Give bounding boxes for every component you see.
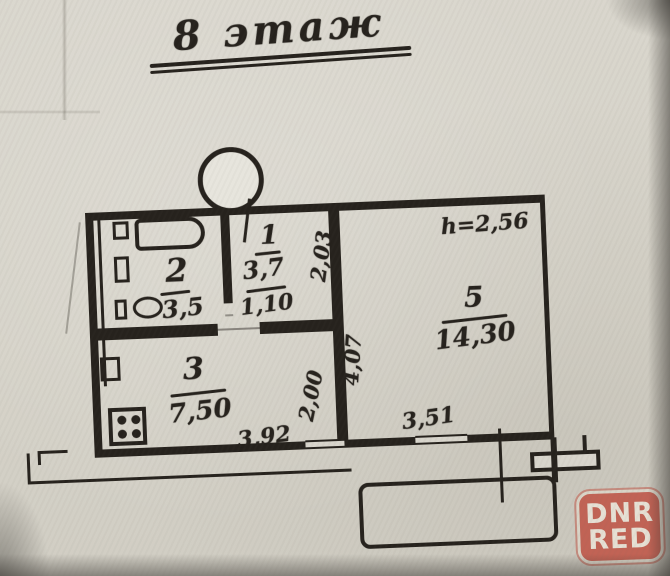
washbasin-icon <box>112 221 129 240</box>
balcony-rail-bracket-tick <box>38 451 42 465</box>
room-1-number: 1 <box>259 220 278 251</box>
photographed-floor-plan: 8 этаж <box>0 0 670 576</box>
kitchen-sink-icon <box>100 357 121 382</box>
kitchen-window <box>305 439 344 450</box>
wall-step-notch <box>582 435 587 451</box>
paper-crease-vertical <box>62 0 67 120</box>
paper-shadow-right-edge <box>648 0 670 576</box>
wall-right-extension <box>550 437 558 482</box>
pencil-stray-line <box>65 222 81 333</box>
sink-icon <box>114 256 130 283</box>
wall-step-bar <box>530 450 601 473</box>
floor-title: 8 этаж <box>146 0 411 74</box>
bathtub-icon <box>134 216 205 251</box>
vent-circle-icon <box>197 146 266 215</box>
floor-plan-drawing: 2 3,5 1 3,7 1,10 2,03 3 7,50 3,92 2,00 h… <box>85 195 554 458</box>
room-2-number: 2 <box>165 251 189 290</box>
paper-shadow-bottom-edge <box>0 554 670 576</box>
loggia-outline <box>358 475 558 549</box>
stove-burners-icon <box>117 416 126 425</box>
floor-title-text: 8 этаж <box>146 0 411 62</box>
stove-icon <box>108 407 147 446</box>
bathroom-door-threshold <box>225 314 233 316</box>
balcony-rail-line <box>28 469 352 485</box>
room-5-number: 5 <box>433 279 514 315</box>
living-room-window <box>415 434 467 445</box>
watermark-line-2: RED <box>588 525 654 553</box>
balcony-rail-hook <box>27 453 31 483</box>
paper-crease-horizontal <box>0 110 100 114</box>
toilet-tank-icon <box>115 299 128 319</box>
room-5-dim-depth: 4,07 <box>337 324 366 395</box>
room-3-number: 3 <box>158 350 229 388</box>
balcony-rail-bracket <box>38 450 68 454</box>
